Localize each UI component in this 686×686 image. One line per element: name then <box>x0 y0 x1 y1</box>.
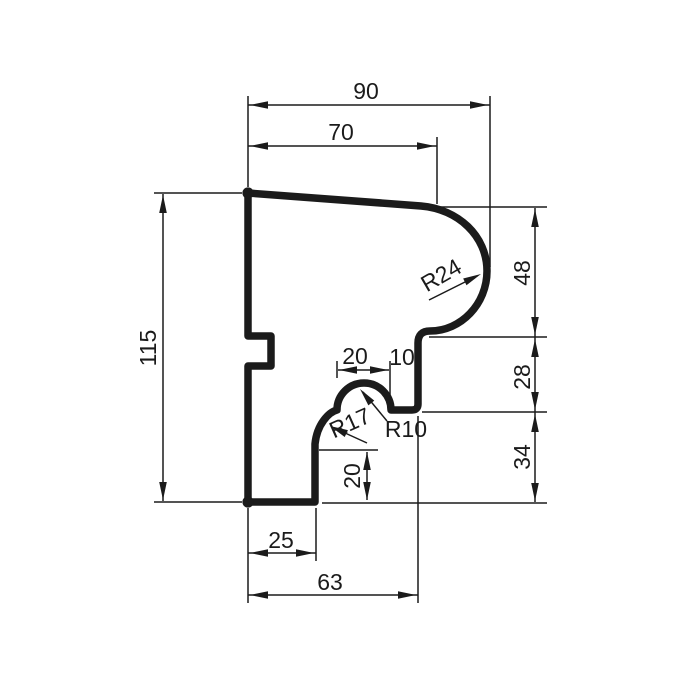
arrowhead <box>250 101 268 109</box>
endpoint-node-bottom-left <box>242 496 253 507</box>
dimension-label: 28 <box>509 364 535 390</box>
dimension-label: 20 <box>339 463 365 489</box>
dimension-label: 90 <box>353 78 379 104</box>
arrowhead <box>250 142 268 150</box>
arrowhead <box>370 366 388 374</box>
dimension-total-height: 115 <box>135 193 242 502</box>
dimension-step-height: 20 <box>319 450 378 500</box>
dimension-bottom-left-width: 25 <box>248 508 316 603</box>
arrowhead <box>296 549 314 557</box>
arrowhead <box>531 317 539 335</box>
arrowhead <box>470 101 488 109</box>
dimension-bead: 20 10 <box>337 343 415 404</box>
arrowhead <box>463 271 483 286</box>
dimension-label: 115 <box>135 330 161 367</box>
arrowhead <box>357 387 374 406</box>
dimension-total-width: 90 <box>248 78 490 267</box>
radius-label: R10 <box>385 416 427 442</box>
radius-callout-r24: R24 <box>416 253 482 300</box>
dimension-label: 10 <box>389 344 415 370</box>
dimension-label: 34 <box>509 444 535 470</box>
arrowhead <box>417 142 435 150</box>
arrowhead <box>250 549 268 557</box>
arrowhead <box>531 209 539 227</box>
arrowhead <box>250 591 268 599</box>
arrowhead <box>531 339 539 357</box>
arrowhead <box>531 414 539 432</box>
dimension-label: 70 <box>328 119 354 145</box>
drawing-canvas: 90 70 115 48 28 34 <box>0 0 686 686</box>
arrowhead <box>159 195 167 213</box>
arrowhead <box>531 392 539 410</box>
arrowhead <box>398 591 416 599</box>
dimension-top-width: 70 <box>248 119 437 204</box>
dimension-bottom-width: 63 <box>248 416 418 603</box>
endpoint-node-top-left <box>242 187 253 198</box>
dimension-label: 25 <box>268 527 294 553</box>
arrowhead <box>531 483 539 501</box>
radius-label: R24 <box>416 253 466 297</box>
technical-drawing: 90 70 115 48 28 34 <box>0 0 686 686</box>
dimension-label: 48 <box>509 260 535 286</box>
dimension-label: 20 <box>342 343 368 369</box>
dimension-label: 63 <box>317 569 343 595</box>
arrowhead <box>159 482 167 500</box>
